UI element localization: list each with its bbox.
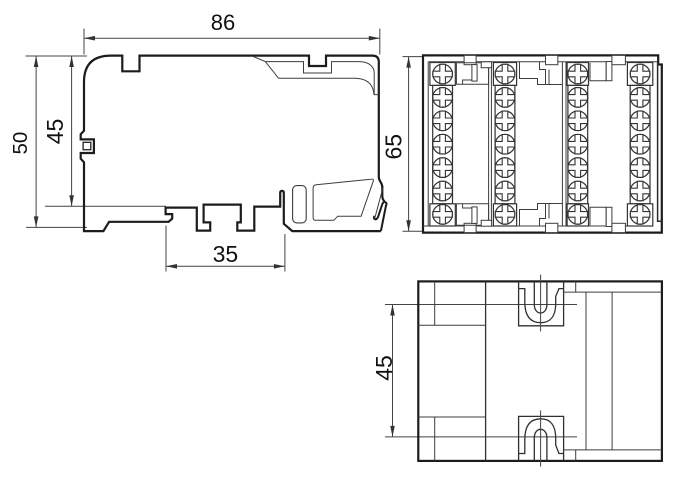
svg-text:45: 45 [371,355,397,381]
svg-text:50: 50 [9,132,32,155]
svg-text:35: 35 [213,241,239,267]
svg-text:65: 65 [381,134,407,160]
svg-text:45: 45 [42,119,68,145]
svg-text:86: 86 [211,10,235,35]
